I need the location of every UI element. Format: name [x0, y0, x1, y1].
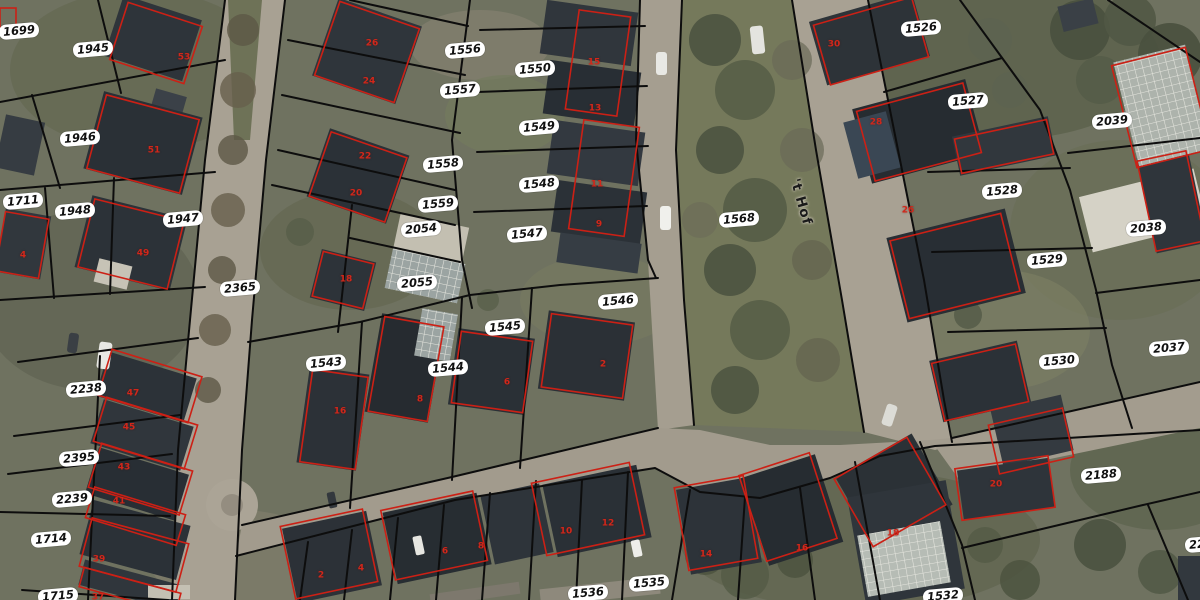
map-viewport[interactable]: 't Hof 169919451946171119481947236522382… [0, 0, 1200, 600]
aerial-imagery-layer [0, 0, 1200, 600]
